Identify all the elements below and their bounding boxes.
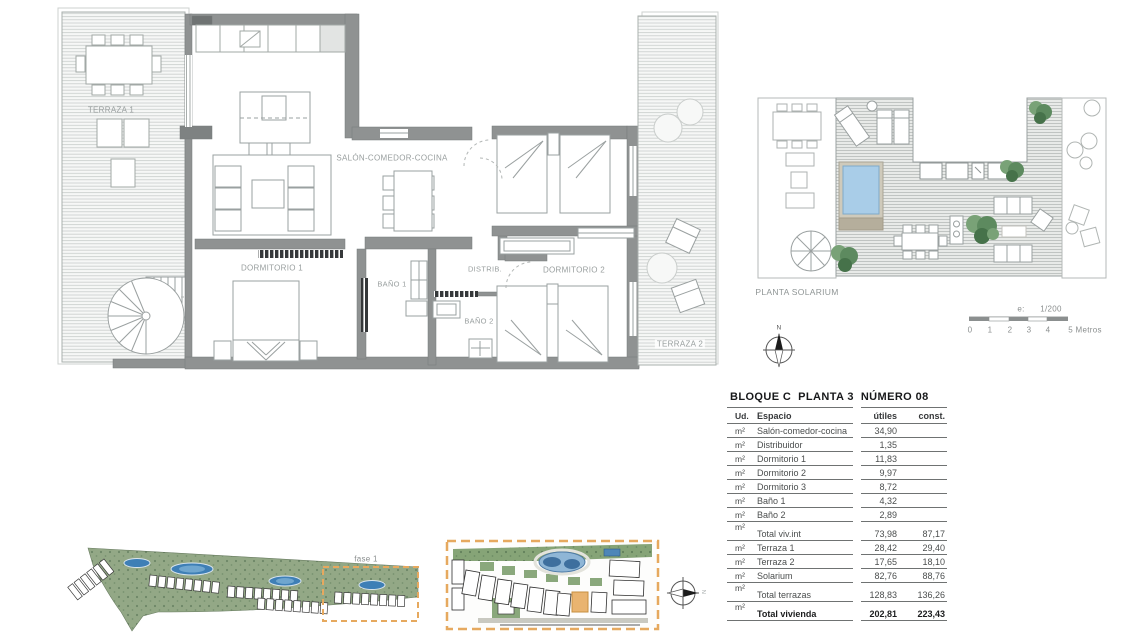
- room-label-bano-2: BAÑO 2: [464, 317, 493, 326]
- row-const: 29,40: [897, 543, 945, 553]
- dining-set: [383, 171, 434, 231]
- table-rule: [727, 601, 949, 602]
- row-ud: m²: [727, 426, 757, 436]
- phase1-label: fase 1: [354, 555, 378, 564]
- row-ud: m²: [727, 440, 757, 450]
- scale-ratio: 1/200: [1040, 305, 1062, 314]
- table-row: m²Baño 14,32: [727, 494, 949, 507]
- area-table-rows: m²Salón-comedor-cocina34,90m²Distribuido…: [727, 424, 949, 621]
- table-rule: [727, 521, 949, 522]
- table-rule: [727, 620, 949, 621]
- room-label-salon: SALÓN-COMEDOR-COCINA: [336, 154, 447, 163]
- table-row: m²Salón-comedor-cocina34,90: [727, 424, 949, 437]
- row-const: 18,10: [897, 557, 945, 567]
- room-label-distrib: DISTRIB.: [468, 265, 502, 274]
- table-row: m²Terraza 128,4229,40: [727, 541, 949, 554]
- row-utiles: 73,98: [853, 529, 897, 539]
- highlighted-unit: [572, 592, 588, 612]
- row-utiles: 34,90: [853, 426, 897, 436]
- row-ud: m²: [727, 571, 757, 581]
- row-espacio: Dormitorio 2: [757, 468, 853, 478]
- row-ud: m²: [727, 602, 757, 612]
- row-ud: m²: [727, 557, 757, 567]
- table-row: m²Total terrazas128,83136,26: [727, 588, 949, 601]
- table-row: m²Baño 22,89: [727, 508, 949, 521]
- compass-rose-site: [667, 577, 699, 609]
- table-row: m²Total viv.int73,9887,17: [727, 527, 949, 540]
- col-const: const.: [897, 411, 945, 421]
- solarium-plan-title: PLANTA SOLARIUM: [755, 287, 838, 297]
- row-ud: m²: [727, 454, 757, 464]
- table-rule: [727, 582, 949, 583]
- table-header-row: Ud. Espacio útiles const.: [727, 408, 949, 423]
- scale-tick-3: 3: [1027, 326, 1032, 335]
- row-utiles: 82,76: [853, 571, 897, 581]
- row-espacio: Distribuidor: [757, 440, 853, 450]
- terraza2-deck: [638, 16, 716, 365]
- row-ud: m²: [727, 522, 757, 532]
- table-rule: [727, 437, 949, 438]
- site-plan-phase1-detail: [447, 541, 658, 629]
- kitchen-counter: [196, 25, 345, 52]
- table-row: m²Dormitorio 29,97: [727, 466, 949, 479]
- row-ud: m²: [727, 482, 757, 492]
- scale-bar: [969, 317, 1068, 321]
- row-utiles: 8,72: [853, 482, 897, 492]
- row-utiles: 202,81: [853, 609, 897, 619]
- row-const: 136,26: [897, 590, 945, 600]
- room-label-dormitorio-2: DORMITORIO 2: [543, 266, 605, 275]
- row-utiles: 11,83: [853, 454, 897, 464]
- beds-dorm2: [497, 284, 608, 362]
- floor-plan-sheet: TERRAZA 1 SALÓN-COMEDOR-COCINA DORMITORI…: [0, 0, 1130, 635]
- main-floor-plan: [58, 8, 718, 369]
- row-espacio: Dormitorio 3: [757, 482, 853, 492]
- row-utiles: 28,42: [853, 543, 897, 553]
- table-rule: [727, 479, 949, 480]
- row-utiles: 128,83: [853, 590, 897, 600]
- row-const: 88,76: [897, 571, 945, 581]
- row-espacio: Solarium: [757, 571, 853, 581]
- col-espacio: Espacio: [757, 411, 853, 421]
- solarium-spiral-stair: [791, 231, 831, 271]
- room-label-dormitorio-1: DORMITORIO 1: [241, 264, 303, 273]
- area-table-title: BLOQUE C PLANTA 3 NÚMERO 08: [730, 391, 949, 403]
- sofa-group: [213, 155, 331, 235]
- compass-main-n-label: N: [777, 325, 782, 332]
- row-espacio: Terraza 2: [757, 557, 853, 567]
- solarium-right-terrace: [1062, 98, 1106, 278]
- table-row: m²Solarium82,7688,76: [727, 569, 949, 582]
- scale-tick-0: 0: [968, 326, 973, 335]
- row-espacio: Total terrazas: [757, 590, 853, 600]
- solarium-counter: [920, 163, 1008, 179]
- scale-prefix: e:: [1017, 305, 1024, 314]
- row-utiles: 9,97: [853, 468, 897, 478]
- room-label-terraza-1: TERRAZA 1: [88, 106, 134, 115]
- row-espacio: Terraza 1: [757, 543, 853, 553]
- row-espacio: Dormitorio 1: [757, 454, 853, 464]
- row-ud: m²: [727, 496, 757, 506]
- row-utiles: 17,65: [853, 557, 897, 567]
- kitchen-island: [240, 92, 310, 162]
- table-rule: [727, 407, 949, 408]
- bathroom-fixtures: [406, 261, 492, 358]
- table-rule: [727, 554, 949, 555]
- row-espacio: Salón-comedor-cocina: [757, 426, 853, 436]
- beds-dorm3: [497, 133, 610, 213]
- detail-road: [478, 618, 648, 623]
- scale-tick-1: 1: [988, 326, 993, 335]
- table-row: m²Total vivienda202,81223,43: [727, 607, 949, 620]
- area-table: BLOQUE C PLANTA 3 NÚMERO 08 Ud. Espacio …: [727, 391, 949, 621]
- table-row: m²Dormitorio 38,72: [727, 480, 949, 493]
- solarium-pool: [839, 162, 883, 230]
- table-rule: [727, 568, 949, 569]
- row-const: 87,17: [897, 529, 945, 539]
- room-label-bano-1: BAÑO 1: [377, 280, 406, 289]
- scale-tick-2: 2: [1008, 326, 1013, 335]
- table-rule: [727, 423, 949, 424]
- table-row: m²Dormitorio 111,83: [727, 452, 949, 465]
- table-row: m²Terraza 217,6518,10: [727, 555, 949, 568]
- row-utiles: 1,35: [853, 440, 897, 450]
- scale-unit: 5 Metros: [1068, 326, 1102, 335]
- col-ud: Ud.: [727, 411, 757, 421]
- row-espacio: Total viv.int: [757, 529, 853, 539]
- row-ud: m²: [727, 583, 757, 593]
- table-rule: [727, 540, 949, 541]
- room-label-terraza-2: TERRAZA 2: [655, 340, 705, 349]
- bed-dorm1: [214, 281, 317, 361]
- table-rule: [727, 465, 949, 466]
- row-utiles: 4,32: [853, 496, 897, 506]
- compass-rose-north: [763, 333, 795, 367]
- row-ud: m²: [727, 510, 757, 520]
- compass-site-n-label: N: [700, 590, 706, 594]
- row-const: 223,43: [897, 609, 945, 619]
- row-utiles: 2,89: [853, 510, 897, 520]
- col-utiles: útiles: [853, 411, 897, 421]
- row-ud: m²: [727, 543, 757, 553]
- table-rule: [727, 451, 949, 452]
- row-espacio: Total vivienda: [757, 609, 853, 619]
- table-rule: [727, 507, 949, 508]
- scale-tick-4: 4: [1046, 326, 1051, 335]
- plans-graphic: [0, 0, 1130, 635]
- table-rule: [727, 493, 949, 494]
- row-espacio: Baño 2: [757, 510, 853, 520]
- row-espacio: Baño 1: [757, 496, 853, 506]
- table-row: m²Distribuidor1,35: [727, 438, 949, 451]
- row-ud: m²: [727, 468, 757, 478]
